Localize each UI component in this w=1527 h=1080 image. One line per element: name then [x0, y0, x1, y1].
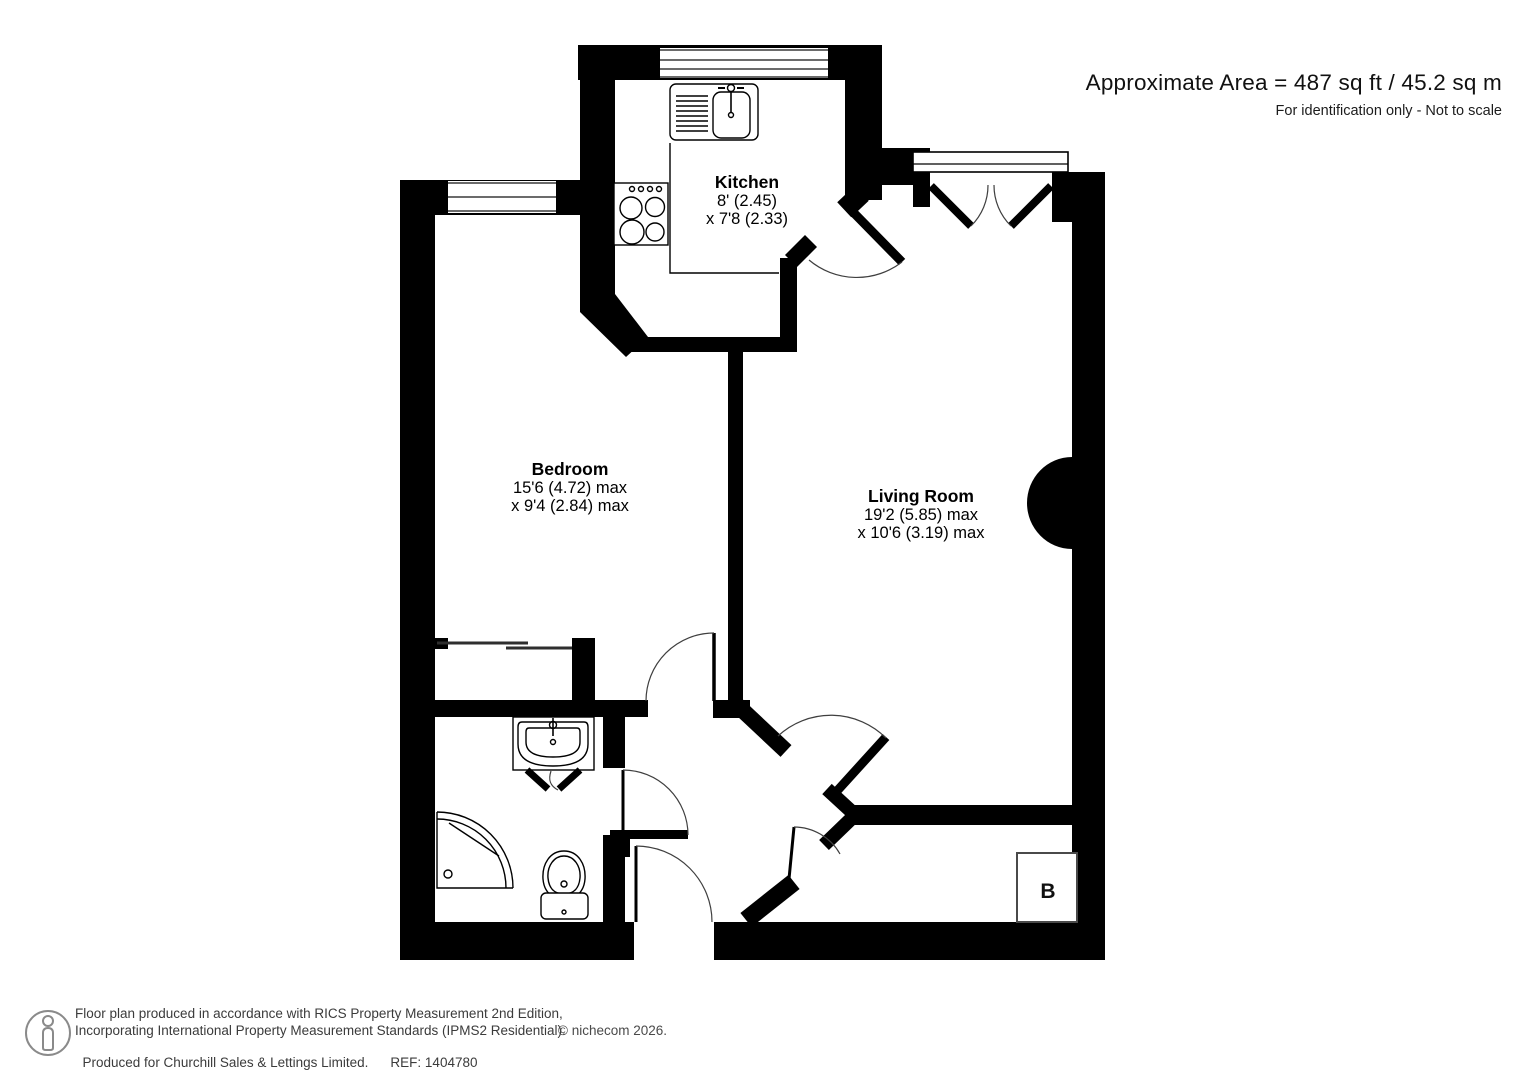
footer-line1: Floor plan produced in accordance with R… — [75, 1006, 563, 1021]
floor-plan-svg: B Kitchen 8' (2.45) x 7'8 (2.33) Bedroom… — [0, 0, 1527, 1080]
wall-hall-diagonal-jamb — [737, 705, 786, 751]
kitchen-door — [809, 210, 902, 277]
wall-bottom-left — [400, 922, 634, 960]
svg-text:8' (2.45): 8' (2.45) — [717, 192, 777, 210]
shower — [437, 812, 513, 888]
svg-text:Living Room: Living Room — [868, 486, 974, 506]
wash-basin — [513, 717, 594, 790]
entrance-door — [636, 846, 712, 922]
balcony-jamb-right — [1052, 172, 1105, 222]
person-icon — [26, 1011, 70, 1055]
footer-ref: REF: 1404780 — [390, 1055, 477, 1070]
footer-line2: Incorporating International Property Mea… — [75, 1023, 566, 1038]
living-room-label: Living Room 19'2 (5.85) max x 10'6 (3.19… — [858, 486, 986, 542]
basin-splash-left — [527, 770, 548, 789]
footer-line3: Produced for Churchill Sales & Lettings … — [75, 1040, 477, 1070]
svg-text:x 10'6 (3.19) max: x 10'6 (3.19) max — [858, 524, 986, 542]
wall-bedroom-living-divider — [728, 337, 743, 703]
wall-bottom-right — [714, 922, 1105, 960]
wall-kitchen-door-jamb-upper — [846, 194, 860, 209]
wardrobe-sliding-doors — [437, 643, 572, 648]
balcony-double-doors — [931, 185, 1051, 226]
bedroom-label: Bedroom 15'6 (4.72) max x 9'4 (2.84) max — [511, 459, 630, 515]
wall-kitchen-door-jamb-lower — [791, 241, 811, 261]
bedroom-window — [448, 181, 556, 213]
floorplan-page: { "header": { "area_text": "Approximate … — [0, 0, 1527, 1080]
svg-text:x 9'4 (2.84) max: x 9'4 (2.84) max — [511, 497, 630, 515]
wall-kitchen-left — [580, 45, 615, 303]
wall-living-bottom — [848, 805, 1105, 825]
wall-living-bottom-cap-lower — [824, 818, 852, 845]
bathroom-door — [623, 770, 688, 835]
kitchen-hob — [614, 183, 668, 245]
toilet — [541, 851, 588, 919]
living-room-door — [778, 715, 886, 791]
footer-produced-for: Produced for Churchill Sales & Lettings … — [83, 1055, 369, 1070]
kitchen-sink — [670, 84, 758, 140]
bathroom-fixtures — [437, 717, 594, 919]
bedroom-door — [646, 633, 714, 701]
svg-text:19'2 (5.85) max: 19'2 (5.85) max — [864, 506, 979, 524]
wall-column-bump — [1027, 457, 1072, 549]
boiler-cupboard: B — [1017, 853, 1077, 922]
wall-kitchen-right-lower — [780, 258, 797, 352]
wall-bathroom-right-upper — [603, 700, 625, 768]
svg-text:Bedroom: Bedroom — [532, 459, 609, 479]
svg-text:15'6 (4.72) max: 15'6 (4.72) max — [513, 479, 628, 497]
wall-kitchen-bottom — [628, 337, 797, 352]
svg-text:x 7'8 (2.33): x 7'8 (2.33) — [706, 210, 788, 228]
balcony-door-frame — [913, 152, 1068, 172]
wall-bathroom-right-lower — [603, 835, 625, 922]
boiler-label: B — [1040, 880, 1055, 903]
svg-text:Kitchen: Kitchen — [715, 172, 779, 192]
wall-wardrobe-right — [572, 638, 595, 717]
balcony-jamb-left — [913, 172, 930, 207]
basin-splash-right — [559, 770, 580, 789]
kitchen-label: Kitchen 8' (2.45) x 7'8 (2.33) — [706, 172, 788, 228]
wall-entrance-chamfer — [746, 882, 794, 920]
kitchen-window — [660, 48, 828, 78]
footer-copyright: © nichecom 2026. — [558, 1023, 667, 1038]
wall-left — [400, 180, 435, 960]
